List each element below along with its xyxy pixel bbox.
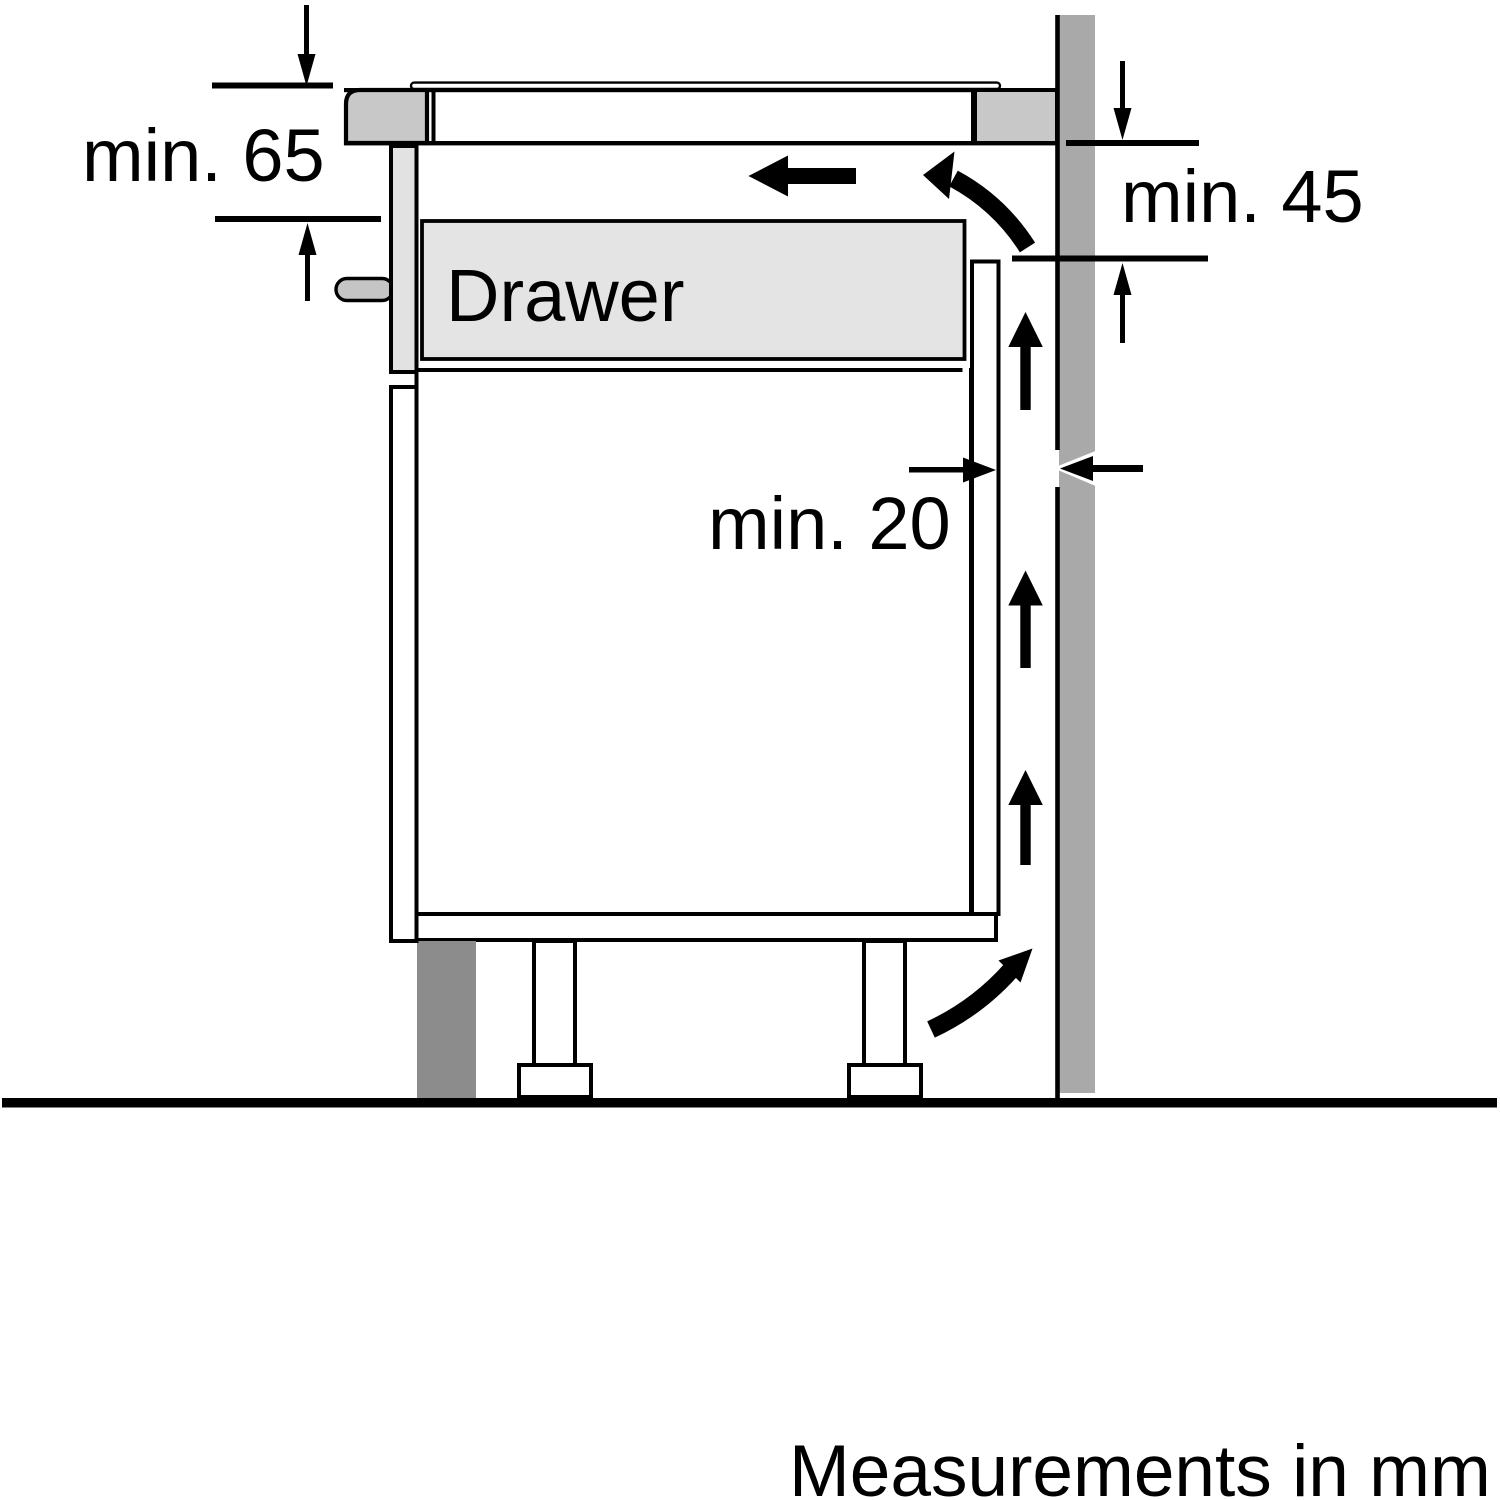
svg-text:min. 65: min. 65 bbox=[82, 114, 325, 197]
svg-text:Measurements in mm: Measurements in mm bbox=[789, 1431, 1491, 1500]
svg-text:min. 45: min. 45 bbox=[1121, 155, 1364, 238]
svg-text:Drawer: Drawer bbox=[446, 254, 684, 337]
svg-text:min. 20: min. 20 bbox=[708, 482, 951, 565]
